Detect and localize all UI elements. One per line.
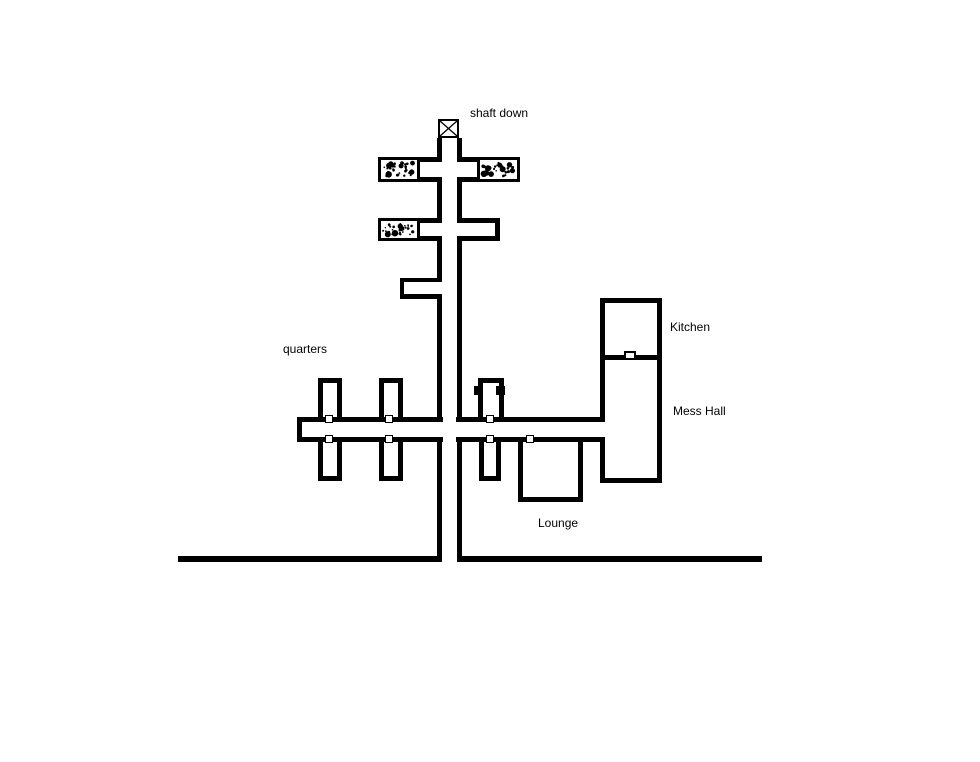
kitchen-mess-hall-block [600, 298, 662, 483]
vertical-corridor-right-wall [457, 437, 462, 562]
quarters-corridor-end-cap [297, 417, 302, 442]
door-icon [624, 351, 636, 360]
door-icon [486, 435, 494, 443]
quarters-room [479, 437, 501, 481]
quarters-label: quarters [283, 342, 327, 356]
alcove-wall [400, 294, 442, 299]
quarters-room [379, 437, 403, 481]
kitchen-label: Kitchen [670, 320, 710, 334]
passage-wall [457, 236, 500, 241]
door-icon [385, 435, 393, 443]
door-icon [325, 435, 333, 443]
lounge-label: Lounge [538, 516, 578, 530]
door-icon [486, 415, 494, 423]
passage-wall [418, 236, 442, 241]
vertical-corridor-left-wall [437, 177, 442, 223]
vertical-corridor-left-wall [437, 236, 442, 282]
passage-wall [418, 177, 442, 182]
mine-level-map: shaft down quarters Kitchen Mess Hall Lo… [0, 0, 980, 762]
shaft-down-icon [438, 119, 459, 139]
bottom-boundary-wall-left [178, 556, 442, 562]
bottom-boundary-wall-right [457, 556, 762, 562]
passage-wall [457, 157, 479, 162]
vertical-corridor-right-wall [457, 177, 462, 223]
passage-wall [418, 218, 442, 223]
mess-hall-corridor-opening [600, 422, 605, 437]
passage-wall [418, 157, 442, 162]
solid-door-tab-icon [496, 386, 505, 395]
lounge-room [518, 437, 583, 502]
vertical-corridor-left-wall [437, 294, 442, 422]
passage-wall [457, 218, 500, 223]
quarters-room [318, 437, 342, 481]
rubble-icon [378, 218, 420, 241]
alcove-wall [400, 278, 442, 282]
solid-door-tab-icon [474, 386, 483, 395]
door-icon [385, 415, 393, 423]
rubble-icon [378, 157, 420, 182]
rubble-icon [477, 157, 520, 182]
vertical-corridor-right-wall [457, 236, 462, 422]
shaft-down-label: shaft down [470, 106, 528, 120]
vertical-corridor-left-wall [437, 437, 442, 562]
mess-hall-label: Mess Hall [673, 404, 726, 418]
door-icon [325, 415, 333, 423]
door-icon [526, 435, 534, 443]
passage-wall [457, 177, 479, 182]
